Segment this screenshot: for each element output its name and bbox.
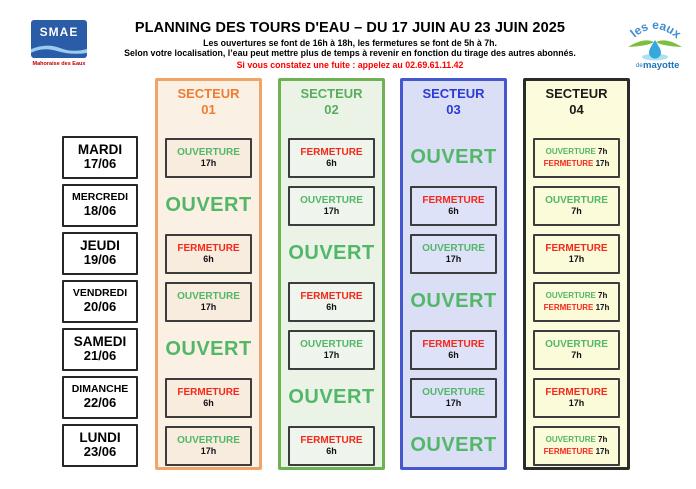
schedule-cell: FERMETURE17h bbox=[526, 376, 627, 419]
status-action: OUVERTURE bbox=[546, 435, 598, 444]
day-name: LUNDI bbox=[79, 431, 120, 446]
svg-text:les eaux: les eaux bbox=[627, 18, 684, 41]
day-name: MARDI bbox=[78, 143, 122, 158]
status-action: FERMETURE bbox=[545, 243, 607, 255]
day-name: JEUDI bbox=[80, 239, 120, 254]
status-hour: 17h bbox=[596, 303, 610, 312]
open-status-text: OUVERT bbox=[165, 338, 251, 361]
day-date: 20/06 bbox=[84, 300, 117, 315]
leaf-icon bbox=[656, 40, 682, 47]
schedule-cell: OUVERT bbox=[281, 232, 382, 275]
sector-header-number: 03 bbox=[403, 102, 504, 118]
schedule-cell: OUVERTURE 7hFERMETURE 17h bbox=[526, 136, 627, 179]
status-box: FERMETURE6h bbox=[288, 426, 375, 466]
status-box-double: OUVERTURE 7hFERMETURE 17h bbox=[533, 282, 620, 322]
open-status-text: OUVERT bbox=[165, 194, 251, 217]
status-box: OUVERTURE17h bbox=[165, 282, 252, 322]
status-action: FERMETURE bbox=[544, 447, 596, 456]
schedule-cell: FERMETURE17h bbox=[526, 232, 627, 275]
status-box: OUVERTURE17h bbox=[165, 138, 252, 178]
status-action: OUVERTURE bbox=[422, 387, 485, 399]
open-status-text: OUVERT bbox=[288, 242, 374, 265]
status-box-double: OUVERTURE 7hFERMETURE 17h bbox=[533, 426, 620, 466]
sector-header-number: 02 bbox=[281, 102, 382, 118]
status-hour: 17h bbox=[596, 159, 610, 168]
status-box: OUVERTURE7h bbox=[533, 330, 620, 370]
status-hour: 17h bbox=[324, 350, 340, 360]
status-hour: 17h bbox=[201, 302, 217, 312]
sector-header-number: 04 bbox=[526, 102, 627, 118]
schedule-cell: OUVERTURE17h bbox=[158, 136, 259, 179]
status-action: OUVERTURE bbox=[177, 435, 240, 447]
status-action: FERMETURE bbox=[177, 243, 239, 255]
eaux-logo-mayotte: mayotte bbox=[643, 60, 679, 71]
schedule-cell: FERMETURE6h bbox=[281, 136, 382, 179]
sector-header-02: SECTEUR02 bbox=[281, 81, 382, 119]
day-date: 22/06 bbox=[84, 396, 117, 411]
schedule-cell: OUVERTURE 7hFERMETURE 17h bbox=[526, 280, 627, 323]
status-hour: 17h bbox=[569, 398, 585, 408]
status-box-double: OUVERTURE 7hFERMETURE 17h bbox=[533, 138, 620, 178]
sector-header-04: SECTEUR04 bbox=[526, 81, 627, 119]
status-action: OUVERTURE bbox=[545, 195, 608, 207]
status-line: FERMETURE 17h bbox=[544, 446, 610, 458]
status-action: FERMETURE bbox=[544, 159, 596, 168]
schedule-cell: FERMETURE6h bbox=[281, 424, 382, 467]
schedule-cell: OUVERT bbox=[281, 376, 382, 419]
status-hour: 6h bbox=[448, 350, 459, 360]
sector-header-label: SECTEUR bbox=[526, 86, 627, 102]
schedule-cell: OUVERTURE 7hFERMETURE 17h bbox=[526, 424, 627, 467]
day-date: 19/06 bbox=[84, 253, 117, 268]
status-hour: 17h bbox=[324, 206, 340, 216]
status-hour: 7h bbox=[598, 291, 607, 300]
status-action: FERMETURE bbox=[544, 303, 596, 312]
status-hour: 17h bbox=[446, 398, 462, 408]
day-name: SAMEDI bbox=[74, 335, 127, 350]
schedule-cell: OUVERTURE7h bbox=[526, 328, 627, 371]
schedule-cell: OUVERT bbox=[158, 184, 259, 227]
sector-column-01: SECTEUR01OUVERTURE17hOUVERTFERMETURE6hOU… bbox=[155, 78, 262, 470]
status-action: OUVERTURE bbox=[177, 291, 240, 303]
smae-logo-tagline: Mahoraise des Eaux bbox=[26, 61, 92, 67]
status-action: OUVERTURE bbox=[546, 147, 598, 156]
schedule-cell: FERMETURE6h bbox=[281, 280, 382, 323]
status-action: OUVERTURE bbox=[546, 291, 598, 300]
status-action: FERMETURE bbox=[300, 435, 362, 447]
status-box: FERMETURE6h bbox=[288, 138, 375, 178]
schedule-cell: OUVERTURE7h bbox=[526, 184, 627, 227]
day-date: 21/06 bbox=[84, 349, 117, 364]
status-action: FERMETURE bbox=[422, 195, 484, 207]
status-box: FERMETURE6h bbox=[288, 282, 375, 322]
sector-header-label: SECTEUR bbox=[403, 86, 504, 102]
sector-header-label: SECTEUR bbox=[281, 86, 382, 102]
smae-logo-text: SMAE bbox=[31, 25, 87, 39]
status-box: FERMETURE6h bbox=[165, 378, 252, 418]
sector-column-03: SECTEUR03OUVERTFERMETURE6hOUVERTURE17hOU… bbox=[400, 78, 507, 470]
status-box: FERMETURE6h bbox=[165, 234, 252, 274]
status-hour: 6h bbox=[326, 446, 337, 456]
status-line: OUVERTURE 7h bbox=[546, 290, 608, 302]
day-label-lundi: LUNDI23/06 bbox=[62, 424, 138, 467]
smae-logo: SMAE Mahoraise des Eaux bbox=[26, 20, 92, 67]
planning-poster: SMAE Mahoraise des Eaux PLANNING DES TOU… bbox=[0, 0, 696, 489]
status-box: FERMETURE17h bbox=[533, 378, 620, 418]
status-action: FERMETURE bbox=[177, 387, 239, 399]
sector-column-02: SECTEUR02FERMETURE6hOUVERTURE17hOUVERTFE… bbox=[278, 78, 385, 470]
schedule-cell: FERMETURE6h bbox=[158, 376, 259, 419]
eaux-logo-arc-text: les eaux bbox=[627, 18, 684, 41]
status-hour: 17h bbox=[596, 447, 610, 456]
day-label-mardi: MARDI17/06 bbox=[62, 136, 138, 179]
open-status-text: OUVERT bbox=[410, 146, 496, 169]
sector-header-03: SECTEUR03 bbox=[403, 81, 504, 119]
status-box: OUVERTURE17h bbox=[410, 234, 497, 274]
status-action: FERMETURE bbox=[422, 339, 484, 351]
status-action: OUVERTURE bbox=[300, 339, 363, 351]
status-hour: 6h bbox=[326, 302, 337, 312]
status-action: OUVERTURE bbox=[422, 243, 485, 255]
status-box: OUVERTURE17h bbox=[288, 186, 375, 226]
day-date: 18/06 bbox=[84, 204, 117, 219]
open-status-text: OUVERT bbox=[288, 386, 374, 409]
day-label-vendredi: VENDREDI20/06 bbox=[62, 280, 138, 323]
eaux-de-mayotte-logo: les eaux de mayotte bbox=[618, 10, 692, 72]
open-status-text: OUVERT bbox=[410, 434, 496, 457]
open-status-text: OUVERT bbox=[410, 290, 496, 313]
leak-alert-phone: Si vous constatez une fuite : appelez au… bbox=[95, 60, 605, 70]
status-line: FERMETURE 17h bbox=[544, 158, 610, 170]
subtitle-localisation: Selon votre localisation, l’eau peut met… bbox=[95, 48, 605, 58]
status-line: OUVERTURE 7h bbox=[546, 434, 608, 446]
status-hour: 17h bbox=[201, 446, 217, 456]
schedule-cell: OUVERTURE17h bbox=[158, 280, 259, 323]
status-hour: 7h bbox=[571, 350, 582, 360]
day-label-jeudi: JEUDI19/06 bbox=[62, 232, 138, 275]
status-action: FERMETURE bbox=[545, 387, 607, 399]
status-action: FERMETURE bbox=[300, 291, 362, 303]
schedule-cell: OUVERTURE17h bbox=[158, 424, 259, 467]
status-line: OUVERTURE 7h bbox=[546, 146, 608, 158]
sector-column-04: SECTEUR04OUVERTURE 7hFERMETURE 17hOUVERT… bbox=[523, 78, 630, 470]
status-hour: 17h bbox=[446, 254, 462, 264]
status-hour: 7h bbox=[571, 206, 582, 216]
status-box: OUVERTURE17h bbox=[165, 426, 252, 466]
leaf-icon bbox=[628, 40, 654, 47]
sector-header-01: SECTEUR01 bbox=[158, 81, 259, 119]
status-box: FERMETURE17h bbox=[533, 234, 620, 274]
wave-icon bbox=[31, 42, 87, 56]
page-title: PLANNING DES TOURS D'EAU – DU 17 JUIN AU… bbox=[95, 20, 605, 36]
status-box: OUVERTURE7h bbox=[533, 186, 620, 226]
status-hour: 17h bbox=[201, 158, 217, 168]
sector-header-number: 01 bbox=[158, 102, 259, 118]
schedule-cell: OUVERTURE17h bbox=[281, 184, 382, 227]
status-box: FERMETURE6h bbox=[410, 330, 497, 370]
schedule-cell: OUVERT bbox=[158, 328, 259, 371]
schedule-cell: OUVERT bbox=[403, 280, 504, 323]
schedule-cell: OUVERT bbox=[403, 424, 504, 467]
day-label-mercredi: MERCREDI18/06 bbox=[62, 184, 138, 227]
schedule-cell: FERMETURE6h bbox=[158, 232, 259, 275]
sector-header-label: SECTEUR bbox=[158, 86, 259, 102]
status-action: FERMETURE bbox=[300, 147, 362, 159]
status-box: FERMETURE6h bbox=[410, 186, 497, 226]
smae-logo-box: SMAE bbox=[31, 20, 87, 58]
schedule-cell: OUVERTURE17h bbox=[281, 328, 382, 371]
header: PLANNING DES TOURS D'EAU – DU 17 JUIN AU… bbox=[95, 20, 605, 70]
status-hour: 6h bbox=[326, 158, 337, 168]
status-line: FERMETURE 17h bbox=[544, 302, 610, 314]
schedule-cell: FERMETURE6h bbox=[403, 328, 504, 371]
status-action: OUVERTURE bbox=[545, 339, 608, 351]
status-box: OUVERTURE17h bbox=[410, 378, 497, 418]
schedule-cell: OUVERTURE17h bbox=[403, 232, 504, 275]
status-action: OUVERTURE bbox=[300, 195, 363, 207]
status-hour: 7h bbox=[598, 435, 607, 444]
schedule-cell: FERMETURE6h bbox=[403, 184, 504, 227]
day-date: 17/06 bbox=[84, 157, 117, 172]
subtitle-hours: Les ouvertures se font de 16h à 18h, les… bbox=[95, 38, 605, 48]
status-hour: 6h bbox=[203, 254, 214, 264]
day-date: 23/06 bbox=[84, 445, 117, 460]
status-hour: 6h bbox=[448, 206, 459, 216]
schedule-cell: OUVERT bbox=[403, 136, 504, 179]
status-box: OUVERTURE17h bbox=[288, 330, 375, 370]
status-action: OUVERTURE bbox=[177, 147, 240, 159]
schedule-cell: OUVERTURE17h bbox=[403, 376, 504, 419]
day-label-samedi: SAMEDI21/06 bbox=[62, 328, 138, 371]
day-label-dimanche: DIMANCHE22/06 bbox=[62, 376, 138, 419]
status-hour: 6h bbox=[203, 398, 214, 408]
status-hour: 7h bbox=[598, 147, 607, 156]
status-hour: 17h bbox=[569, 254, 585, 264]
